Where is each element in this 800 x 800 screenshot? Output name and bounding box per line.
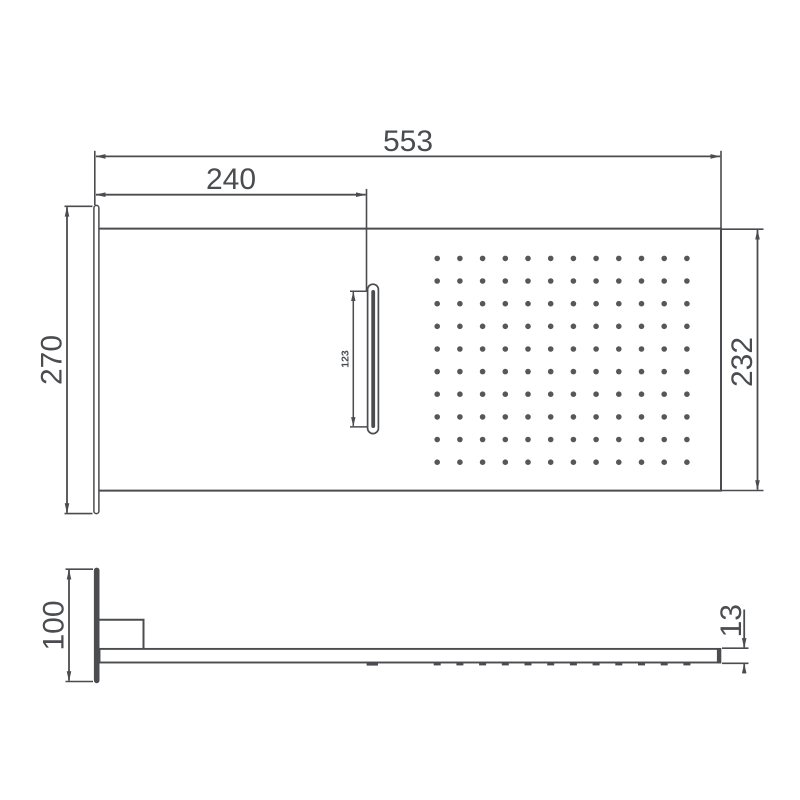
svg-text:240: 240 bbox=[206, 163, 256, 196]
svg-text:100: 100 bbox=[37, 600, 70, 650]
svg-text:123: 123 bbox=[339, 350, 351, 368]
svg-text:270: 270 bbox=[35, 335, 68, 385]
svg-text:13: 13 bbox=[715, 604, 748, 637]
svg-text:553: 553 bbox=[383, 125, 433, 158]
svg-text:232: 232 bbox=[726, 337, 759, 387]
